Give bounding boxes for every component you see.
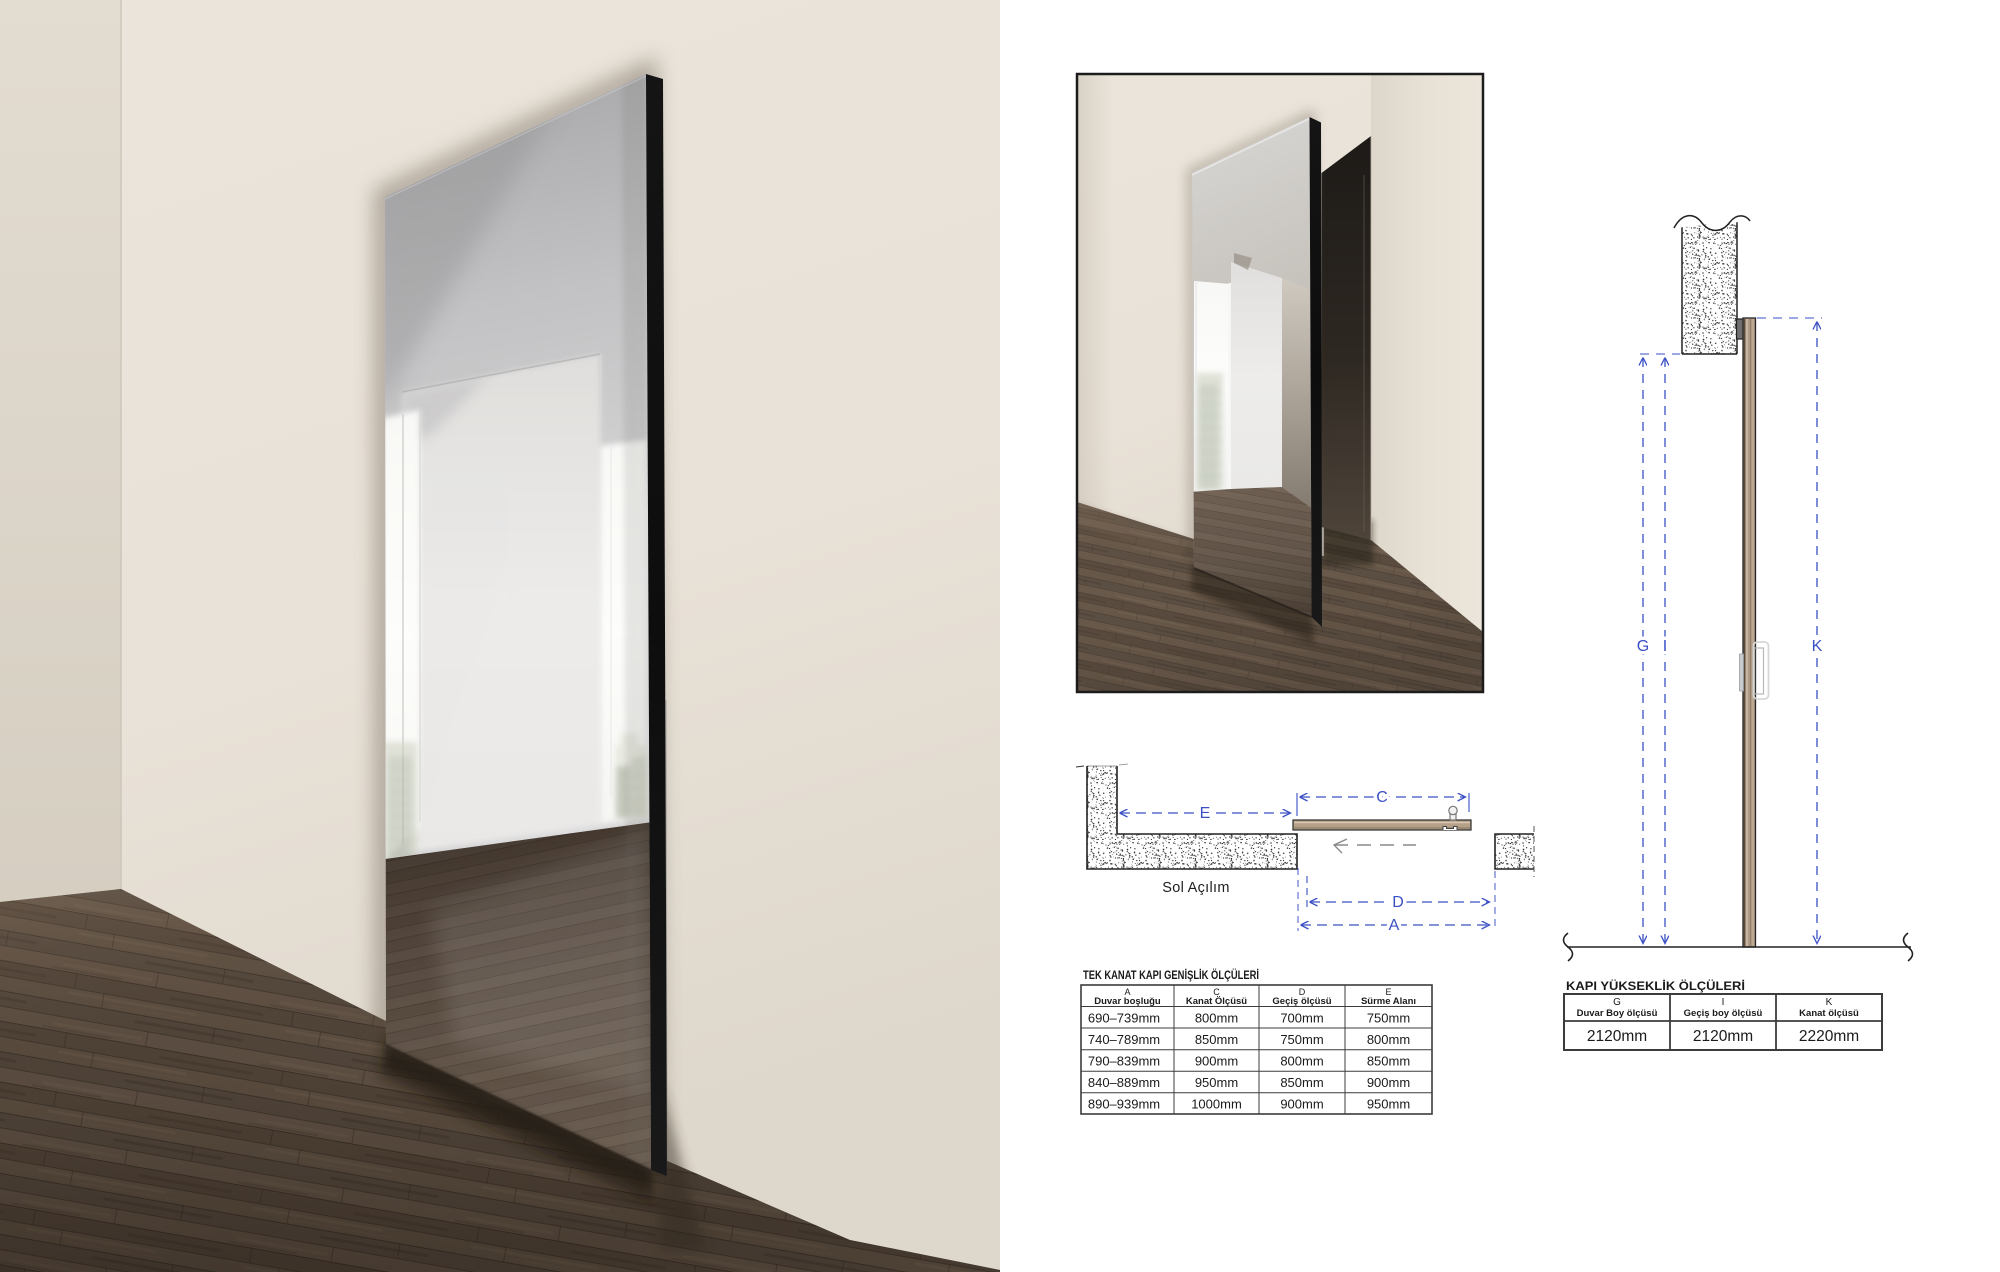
svg-text:K: K	[1812, 638, 1823, 655]
svg-text:690–739mm: 690–739mm	[1088, 1011, 1160, 1026]
svg-text:850mm: 850mm	[1367, 1054, 1410, 1069]
svg-text:700mm: 700mm	[1280, 1011, 1323, 1026]
svg-text:950mm: 950mm	[1367, 1097, 1410, 1112]
svg-text:900mm: 900mm	[1195, 1054, 1238, 1069]
svg-text:I: I	[1722, 997, 1725, 1008]
svg-text:Sürme Alanı: Sürme Alanı	[1361, 996, 1416, 1007]
svg-text:740–789mm: 740–789mm	[1088, 1032, 1160, 1047]
svg-text:750mm: 750mm	[1367, 1011, 1410, 1026]
svg-text:I: I	[1663, 638, 1667, 655]
svg-text:950mm: 950mm	[1195, 1075, 1238, 1090]
svg-text:800mm: 800mm	[1195, 1011, 1238, 1026]
svg-text:850mm: 850mm	[1280, 1075, 1323, 1090]
svg-text:Geçiş boy ölçüsü: Geçiş boy ölçüsü	[1684, 1008, 1763, 1019]
svg-text:Duvar boşluğu: Duvar boşluğu	[1094, 996, 1161, 1007]
svg-text:790–839mm: 790–839mm	[1088, 1054, 1160, 1069]
svg-text:KAPI YÜKSEKLİK ÖLÇÜLERİ: KAPI YÜKSEKLİK ÖLÇÜLERİ	[1566, 978, 1745, 993]
svg-text:Kanat Ölçüsü: Kanat Ölçüsü	[1186, 996, 1247, 1007]
svg-text:800mm: 800mm	[1280, 1054, 1323, 1069]
svg-text:D: D	[1392, 894, 1404, 911]
svg-text:Sol Açılım: Sol Açılım	[1162, 880, 1229, 896]
svg-text:Kanat ölçüsü: Kanat ölçüsü	[1799, 1008, 1859, 1019]
svg-text:900mm: 900mm	[1367, 1075, 1410, 1090]
svg-text:E: E	[1200, 805, 1211, 822]
svg-text:G: G	[1613, 997, 1621, 1008]
svg-text:K: K	[1826, 997, 1833, 1008]
svg-text:2120mm: 2120mm	[1587, 1028, 1647, 1045]
svg-text:G: G	[1637, 638, 1649, 655]
svg-text:Duvar Boy ölçüsü: Duvar Boy ölçüsü	[1577, 1008, 1658, 1019]
svg-text:TEK KANAT KAPI GENİŞLİK ÖLÇÜLE: TEK KANAT KAPI GENİŞLİK ÖLÇÜLERİ	[1083, 967, 1259, 982]
svg-text:2220mm: 2220mm	[1799, 1028, 1859, 1045]
svg-text:Geçiş ölçüsü: Geçiş ölçüsü	[1272, 996, 1331, 1007]
svg-text:840–889mm: 840–889mm	[1088, 1075, 1160, 1090]
svg-text:750mm: 750mm	[1280, 1032, 1323, 1047]
svg-text:2120mm: 2120mm	[1693, 1028, 1753, 1045]
svg-text:C: C	[1376, 789, 1388, 806]
svg-text:1000mm: 1000mm	[1191, 1097, 1242, 1112]
svg-text:900mm: 900mm	[1280, 1097, 1323, 1112]
svg-text:890–939mm: 890–939mm	[1088, 1097, 1160, 1112]
svg-text:800mm: 800mm	[1367, 1032, 1410, 1047]
svg-text:850mm: 850mm	[1195, 1032, 1238, 1047]
svg-text:A: A	[1389, 917, 1400, 934]
